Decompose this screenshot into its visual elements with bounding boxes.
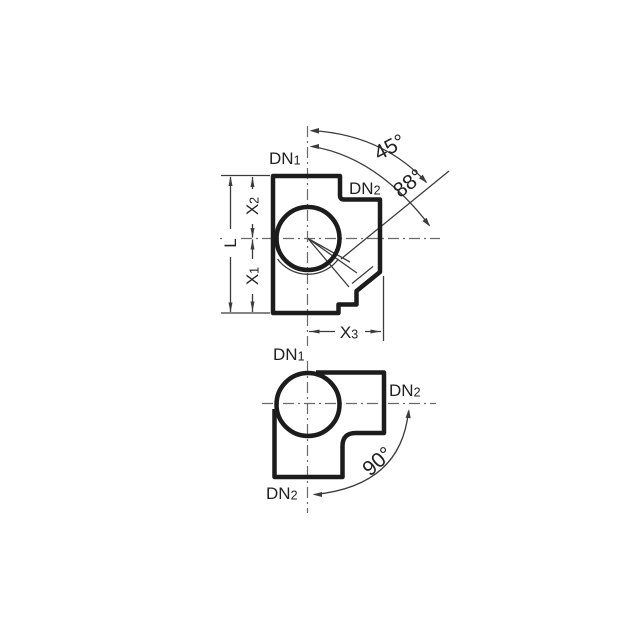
arrowhead xyxy=(310,128,320,134)
arrowhead xyxy=(406,409,411,418)
figure-bottom-plan-view: DN1 DN2 DN2 90° xyxy=(262,345,436,513)
arrowhead xyxy=(251,177,255,187)
arrowhead xyxy=(422,218,430,227)
arrowhead xyxy=(251,228,255,238)
angle-arc-90 xyxy=(315,411,409,495)
port-label-dn1-top: DN1 xyxy=(269,149,301,168)
arrowhead xyxy=(310,144,320,149)
arrowhead xyxy=(310,330,320,334)
socket-cone-lines xyxy=(308,239,357,288)
figure-top-front-view: L X2 X1 X3 DN1 DN2 45° 88° xyxy=(220,126,449,346)
arrowhead xyxy=(313,492,323,497)
angle-label-90: 90° xyxy=(358,443,397,481)
arrowhead xyxy=(251,240,255,250)
port-label-dn1-bottom-figure: DN1 xyxy=(273,345,305,364)
port-label-dn2-right: DN2 xyxy=(389,381,421,400)
dim-label-L: L xyxy=(221,238,240,247)
port-label-dn2-bottom: DN2 xyxy=(266,484,298,503)
technical-drawing-canvas: L X2 X1 X3 DN1 DN2 45° 88° DN1 DN2 DN2 9… xyxy=(0,0,640,640)
pipe-fitting-diagram: L X2 X1 X3 DN1 DN2 45° 88° DN1 DN2 DN2 9… xyxy=(0,0,640,640)
arrowhead xyxy=(229,176,233,186)
port-label-dn2-top: DN2 xyxy=(349,179,381,198)
arrowhead xyxy=(251,302,255,312)
angle-label-88: 88° xyxy=(389,165,428,203)
arrowhead xyxy=(229,303,233,313)
angle-label-45: 45° xyxy=(370,130,409,165)
arrowhead xyxy=(371,330,381,334)
